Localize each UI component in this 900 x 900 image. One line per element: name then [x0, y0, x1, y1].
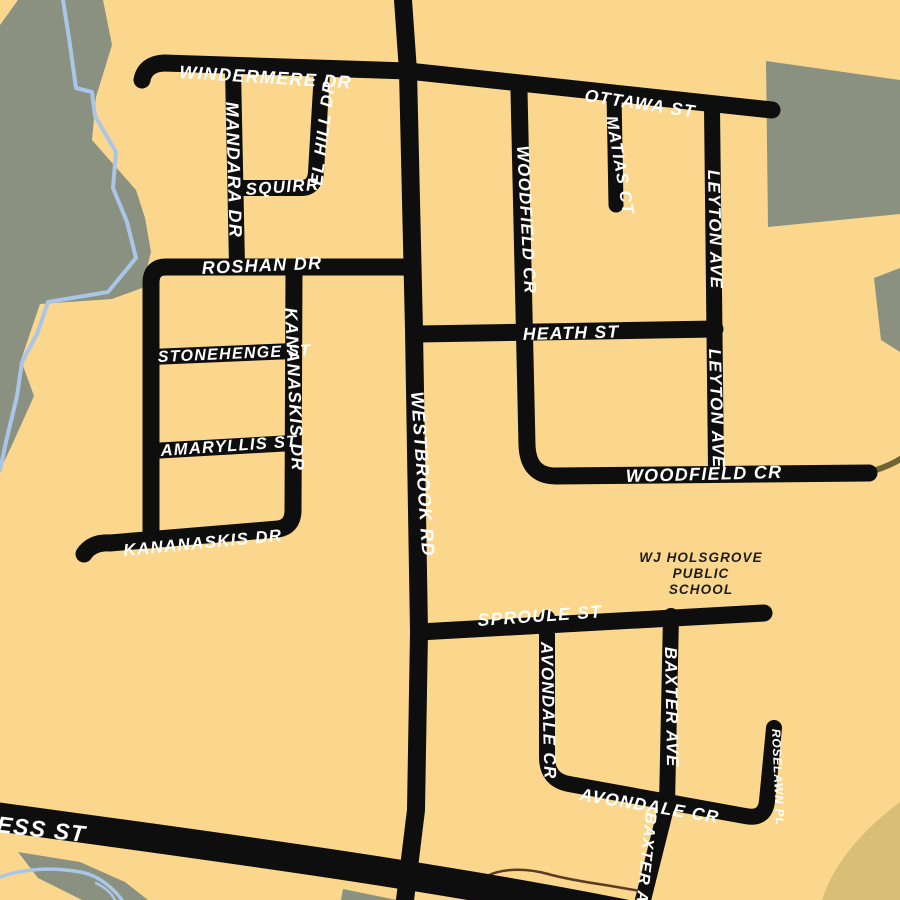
map-canvas: WINDERMERE DR MANDARA DR SQUIRR EL HILL … — [0, 0, 900, 900]
school-label-line1: WJ HOLSGROVE — [639, 550, 762, 565]
neighbourhood-map-poster: WINDERMERE DR MANDARA DR SQUIRR EL HILL … — [0, 0, 900, 900]
street-label-woodfield-cr-east: WOODFIELD CR — [626, 462, 783, 486]
street-label-baxter-ave-north: BAXTER AVE — [661, 647, 682, 768]
park-area-northeast — [766, 61, 900, 227]
street-label-mandara-dr: MANDARA DR — [222, 102, 246, 239]
school-label-line3: SCHOOL — [669, 582, 733, 597]
street-label-heath-st: HEATH ST — [523, 321, 620, 344]
school-label-line2: PUBLIC — [673, 566, 730, 581]
street-label-avondale-cr-north: AVONDALE CR — [537, 641, 560, 780]
street-label-leyton-ave-north: LEYTON AVE — [704, 170, 726, 290]
